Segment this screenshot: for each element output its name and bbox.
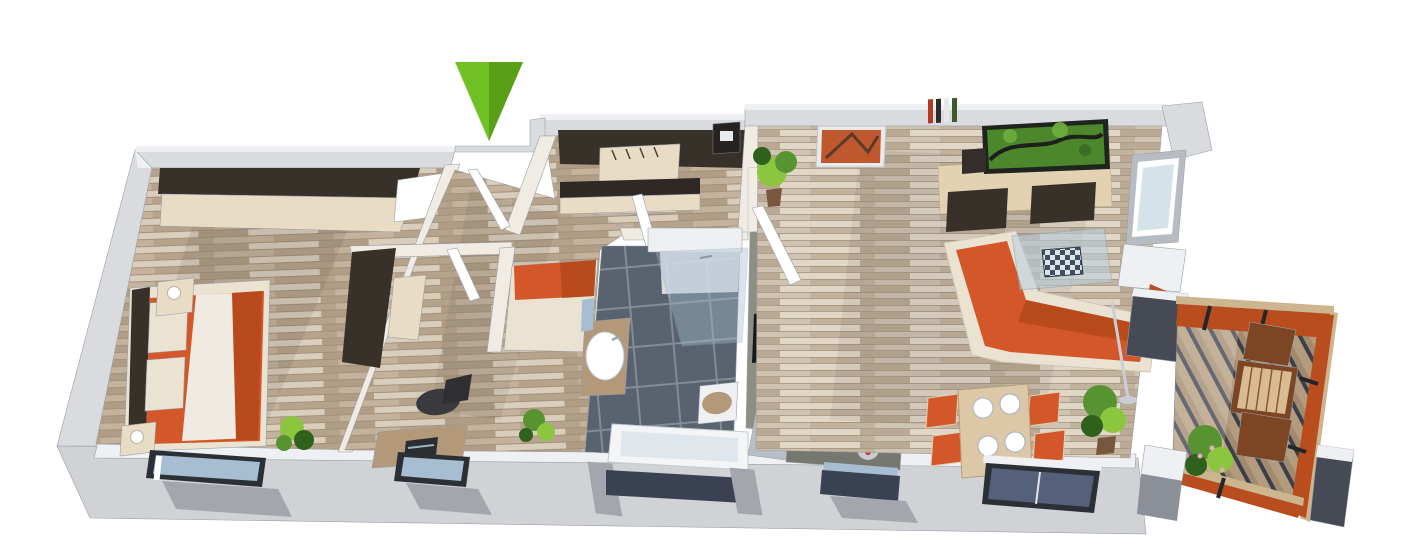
entrance-recess-wall [455, 118, 545, 152]
media-box [962, 148, 986, 174]
plant-foliage [276, 435, 292, 451]
plant-pot [1096, 436, 1116, 455]
hall-back-wall-top [540, 114, 745, 120]
nightstand-top [156, 278, 194, 316]
media-cabinet-left [946, 188, 1008, 232]
plant-foliage [537, 423, 555, 441]
dining-chair [926, 394, 958, 428]
plate [1005, 432, 1025, 452]
plate [1000, 394, 1020, 414]
tv-screen-leaves [1079, 144, 1091, 156]
tv-screen-leaves [1003, 129, 1017, 143]
tv-screen-leaves [1052, 122, 1068, 138]
media-cabinet-right [1030, 182, 1096, 224]
terrace [1126, 284, 1354, 527]
bathroom-mirror [581, 298, 594, 332]
plant-foliage [519, 428, 533, 442]
plant-foliage [753, 147, 771, 165]
book [928, 99, 933, 123]
plant-foliage [294, 430, 314, 450]
window-glass [1137, 164, 1174, 231]
plate [973, 398, 993, 418]
wall-art [816, 126, 886, 167]
book [944, 98, 949, 122]
right-wall-window [1126, 150, 1186, 246]
floor-lamp-base [1119, 396, 1137, 404]
terrace-chair-bottom [1236, 412, 1292, 462]
flower [1210, 446, 1215, 451]
terrace-table-slats [1237, 366, 1292, 414]
plant-foliage [1100, 407, 1126, 433]
chessboard [1042, 247, 1083, 277]
plant-foliage [775, 151, 797, 173]
bathtub [608, 424, 748, 470]
flower [1198, 454, 1203, 459]
right-wall-block [1118, 244, 1186, 292]
floor-plan-canvas [0, 0, 1405, 548]
dining-chair [1028, 392, 1060, 426]
coffee-table [1012, 228, 1112, 290]
washbasin [586, 332, 624, 380]
dining-chair [931, 432, 963, 466]
floor-plan-3d-render [0, 0, 1405, 548]
entrance-marker [455, 62, 523, 141]
toilet [698, 382, 738, 424]
terrace-chair-top [1243, 322, 1296, 366]
table-lamp [168, 287, 181, 300]
bedroom-closet-doors [160, 194, 412, 232]
plant-pot [766, 188, 782, 207]
bed-pillow-bottom [145, 357, 185, 411]
terrace-left-wall-base [1137, 474, 1182, 521]
daybed-headrest-shade [560, 260, 596, 298]
plant-foliage [1185, 454, 1207, 476]
bed-runner-orange [232, 291, 262, 440]
bedroom-back-wall-top [135, 146, 455, 152]
book [936, 99, 941, 123]
arrow-down-icon-shade [489, 62, 523, 141]
bedroom-back-wall [135, 150, 455, 168]
book [952, 98, 957, 122]
flower [1220, 468, 1225, 473]
dining-sliding-door [982, 455, 1102, 513]
intercom-screen [720, 131, 733, 141]
plant-foliage [1081, 415, 1103, 437]
bedroom-wardrobe-top [158, 168, 420, 198]
plate [978, 436, 998, 456]
bathroom [580, 228, 748, 470]
table-lamp [131, 431, 144, 444]
